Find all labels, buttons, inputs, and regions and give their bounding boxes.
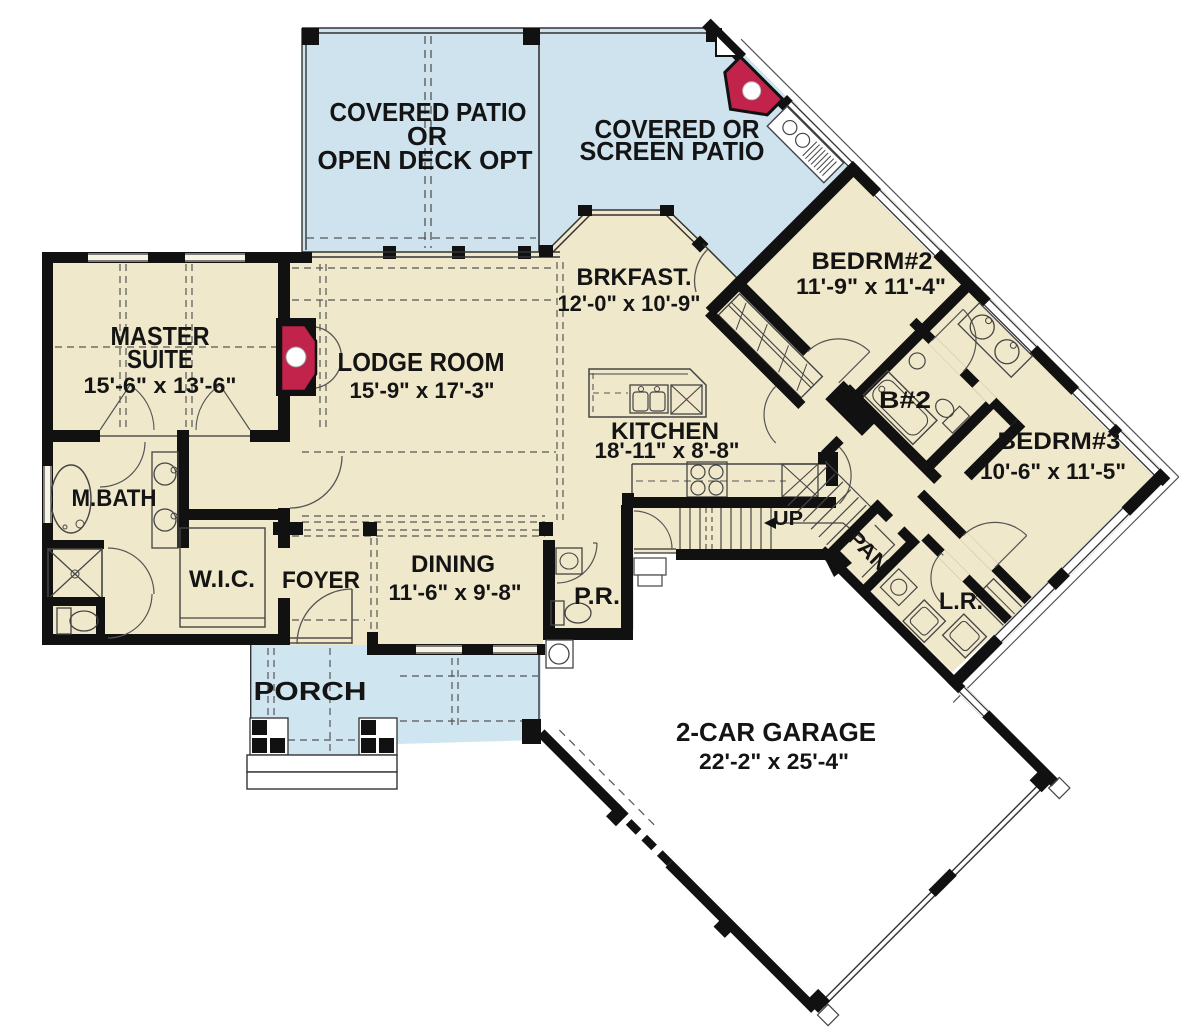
svg-text:W.I.C.: W.I.C.: [189, 566, 255, 593]
svg-text:PORCH: PORCH: [254, 676, 367, 706]
svg-text:P.R.: P.R.: [574, 583, 620, 610]
svg-text:22'-2" x 25'-4": 22'-2" x 25'-4": [699, 749, 849, 774]
svg-text:15'-9" x 17'-3": 15'-9" x 17'-3": [350, 378, 495, 403]
svg-text:OPEN DECK OPT: OPEN DECK OPT: [318, 145, 533, 175]
svg-text:SUITE: SUITE: [127, 344, 193, 374]
svg-text:10'-6" x 11'-5": 10'-6" x 11'-5": [980, 459, 1126, 484]
svg-text:BEDRM#3: BEDRM#3: [998, 428, 1121, 455]
svg-text:DINING: DINING: [411, 551, 495, 578]
svg-text:LODGE ROOM: LODGE ROOM: [338, 347, 505, 377]
svg-text:BEDRM#2: BEDRM#2: [812, 248, 933, 275]
svg-text:UP: UP: [773, 508, 803, 530]
svg-text:M.BATH: M.BATH: [72, 485, 157, 512]
svg-text:FOYER: FOYER: [282, 567, 360, 594]
svg-text:15'-6" x 13'-6": 15'-6" x 13'-6": [84, 373, 237, 398]
svg-text:SCREEN PATIO: SCREEN PATIO: [580, 136, 765, 166]
svg-text:2-CAR GARAGE: 2-CAR GARAGE: [676, 717, 876, 747]
svg-text:12'-0" x 10'-9": 12'-0" x 10'-9": [558, 291, 701, 316]
svg-text:B#2: B#2: [879, 387, 931, 414]
svg-text:L.R.: L.R.: [939, 588, 983, 615]
svg-text:18'-11" x 8'-8": 18'-11" x 8'-8": [595, 438, 740, 463]
svg-text:BRKFAST.: BRKFAST.: [577, 264, 692, 291]
svg-text:11'-9" x 11'-4": 11'-9" x 11'-4": [796, 274, 946, 299]
svg-text:11'-6" x 9'-8": 11'-6" x 9'-8": [389, 580, 522, 605]
